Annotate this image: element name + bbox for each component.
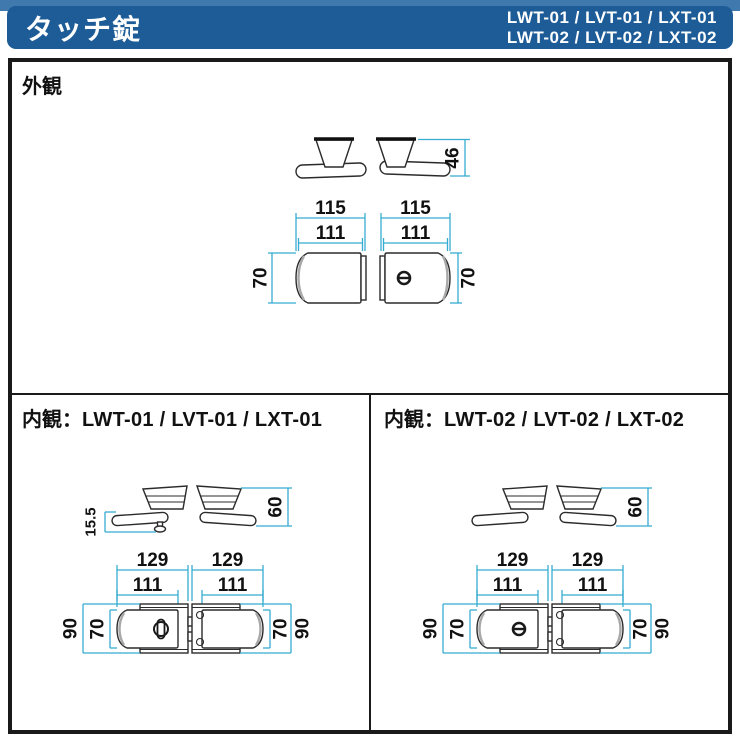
dim-label-129: 129 <box>572 550 604 571</box>
interior1-front-view-right-unit <box>192 604 263 653</box>
dim-label-46: 46 <box>443 147 464 168</box>
dim-label-111: 111 <box>218 575 248 596</box>
exterior-dim-width-left: 115 111 <box>296 198 365 251</box>
dim-label-70: 70 <box>459 267 480 288</box>
interior1-dim-70-right: 70 <box>263 610 292 648</box>
dim-label-115: 115 <box>400 198 431 219</box>
dim-label-90: 90 <box>421 618 442 639</box>
dim-label-129: 129 <box>497 550 529 571</box>
interior2-front-view-right-unit <box>552 604 623 653</box>
dim-label-111: 111 <box>493 575 523 596</box>
interior2-dim-width-left: 129 111 <box>477 550 548 607</box>
dim-label-60: 60 <box>266 496 287 517</box>
interior2-front-view-left-unit <box>477 604 548 653</box>
model-line-1: LWT-01 / LVT-01 / LXT-01 <box>507 8 717 28</box>
interior-right-drawing-svg: 60 129 111 129 111 <box>420 455 700 695</box>
exterior-section-label: 外観 <box>22 70 62 99</box>
header-bar: タッチ錠 LWT-01 / LVT-01 / LXT-01 LWT-02 / L… <box>7 6 733 49</box>
interior2-top-view-right-handle <box>557 486 616 526</box>
exterior-top-view-right-handle <box>376 139 450 176</box>
exterior-dim-70-right: 70 <box>450 253 480 303</box>
interior1-dim-width-right: 129 111 <box>192 550 263 607</box>
catalog-page: { "header": { "title": "タッチ錠", "models_l… <box>0 0 740 740</box>
dim-label-70: 70 <box>271 618 292 639</box>
interior1-dim-width-left: 129 111 <box>117 550 188 607</box>
dim-label-70: 70 <box>448 618 469 639</box>
dim-label-111: 111 <box>133 575 163 596</box>
dim-label-129: 129 <box>212 550 244 571</box>
interior-right-title-prefix: 内観： <box>384 409 444 431</box>
dim-label-111: 111 <box>578 575 608 596</box>
dim-label-90: 90 <box>293 618 314 639</box>
interior2-dim-70-right: 70 <box>623 610 652 648</box>
dim-label-70: 70 <box>88 618 109 639</box>
interior-left-drawing: 15.5 60 129 111 129 111 <box>60 455 340 695</box>
header-model-numbers: LWT-01 / LVT-01 / LXT-01 LWT-02 / LVT-02… <box>507 8 717 48</box>
dim-label-60: 60 <box>626 496 647 517</box>
dim-label-129: 129 <box>137 550 169 571</box>
dim-label-111: 111 <box>401 223 431 244</box>
exterior-drawing-svg: 46 115 111 115 111 <box>240 125 490 320</box>
exterior-front-view-right-body <box>380 253 450 303</box>
dim-label-111: 111 <box>316 223 346 244</box>
interior-left-title-prefix: 内観： <box>22 409 82 431</box>
model-line-2: LWT-02 / LVT-02 / LXT-02 <box>507 28 717 48</box>
exterior-drawing: 46 115 111 115 111 <box>240 125 490 320</box>
interior-left-title-models: LWT-01 / LVT-01 / LXT-01 <box>82 409 322 431</box>
dim-label-115: 115 <box>315 198 346 219</box>
page-title: タッチ錠 <box>25 8 141 48</box>
interior1-top-view-left-handle <box>112 486 187 532</box>
interior2-dim-width-right: 129 111 <box>552 550 623 607</box>
exterior-top-view-left-handle <box>296 139 366 178</box>
interior1-top-view-right-handle <box>197 486 256 526</box>
interior-right-panel-title: 内観：LWT-02 / LVT-02 / LXT-02 <box>384 403 684 432</box>
interior-left-drawing-svg: 15.5 60 129 111 129 111 <box>60 455 340 695</box>
interior1-dim-70-left: 70 <box>88 610 118 648</box>
interior-left-panel-title: 内観：LWT-01 / LVT-01 / LXT-01 <box>22 403 322 432</box>
dim-label-15-5: 15.5 <box>83 507 100 536</box>
exterior-front-view-left-body <box>296 253 366 303</box>
interior1-front-view-left-unit <box>117 604 188 653</box>
exterior-dim-width-right: 115 111 <box>381 198 450 251</box>
dim-label-70: 70 <box>251 267 272 288</box>
interior2-dim-70-left: 70 <box>448 610 478 648</box>
interior-right-drawing: 60 129 111 129 111 <box>420 455 700 695</box>
interior-right-title-models: LWT-02 / LVT-02 / LXT-02 <box>444 409 684 431</box>
section-divider-vertical <box>369 393 371 730</box>
dim-label-90: 90 <box>653 618 674 639</box>
dim-label-70: 70 <box>631 618 652 639</box>
exterior-dim-70-left: 70 <box>251 253 297 303</box>
dim-label-90: 90 <box>61 618 82 639</box>
interior2-top-view-left-handle <box>472 486 547 526</box>
